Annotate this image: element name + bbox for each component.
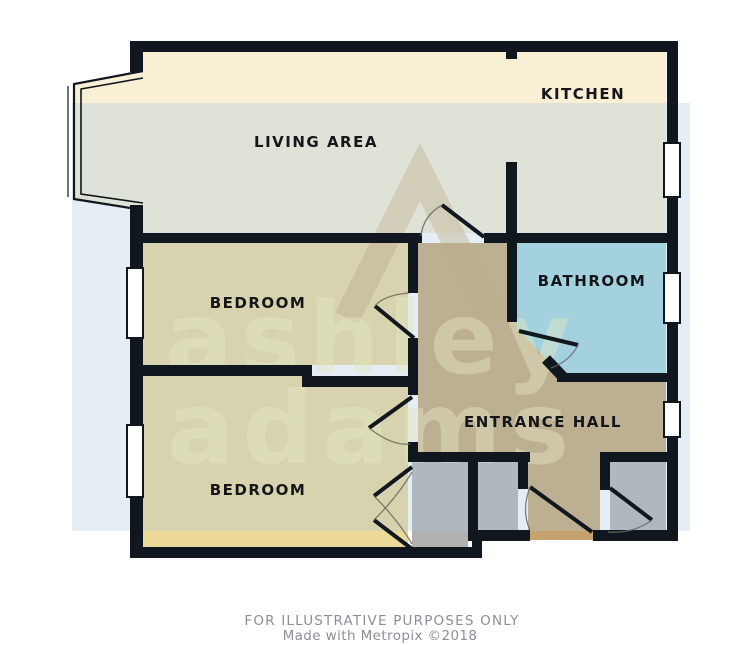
wall-right-1: [667, 41, 678, 143]
wall-top: [130, 41, 678, 52]
wall-left-3: [130, 338, 143, 425]
bedroom-2-label: BEDROOM: [210, 481, 307, 499]
bathroom-label: BATHROOM: [538, 272, 647, 290]
blue-tint-overlay: [72, 103, 690, 531]
wall-bedroom2-right-a: [408, 376, 418, 395]
wall-bedrooms-a: [130, 365, 312, 376]
floorplan-page: ashley adams: [0, 0, 750, 645]
wall-cupboard2-right: [518, 452, 528, 489]
wall-right-3: [667, 323, 678, 402]
wall-kitchen-stub: [506, 52, 517, 59]
wall-bottom-mid: [472, 530, 530, 541]
bedroom-1-window: [127, 268, 143, 338]
wall-closet-top: [600, 452, 672, 462]
kitchen-label: KITCHEN: [541, 85, 625, 103]
bedroom-1-label: BEDROOM: [210, 294, 307, 312]
entrance-hall-label: ENTRANCE HALL: [464, 413, 622, 431]
floorplan-svg: ashley adams: [0, 0, 750, 645]
wall-closet-left: [600, 452, 610, 490]
wall-bottom-right: [593, 530, 678, 541]
bathroom-window: [664, 273, 680, 323]
wall-bedroom1-right-b: [408, 338, 418, 376]
wall-cupboards-divider: [468, 452, 478, 541]
wall-bathroom-bottom: [557, 373, 667, 382]
wall-bathroom-left: [507, 233, 517, 322]
wall-bottom-left: [130, 547, 482, 558]
hall-window: [664, 402, 680, 437]
kitchen-window: [664, 143, 680, 197]
footer-disclaimer: FOR ILLUSTRATIVE PURPOSES ONLY: [244, 613, 519, 629]
living-area-label: LIVING AREA: [254, 133, 378, 151]
wall-kitchen-divider: [506, 162, 517, 243]
footer: FOR ILLUSTRATIVE PURPOSES ONLY Made with…: [244, 613, 519, 644]
wall-bedrooms-b: [302, 376, 418, 387]
wall-living-bedroom1: [130, 233, 422, 243]
wall-bedroom1-right-a: [408, 243, 418, 293]
bedroom-2-window: [127, 425, 143, 497]
footer-credit: Made with Metropix ©2018: [283, 628, 478, 644]
wall-left-1: [130, 41, 143, 72]
